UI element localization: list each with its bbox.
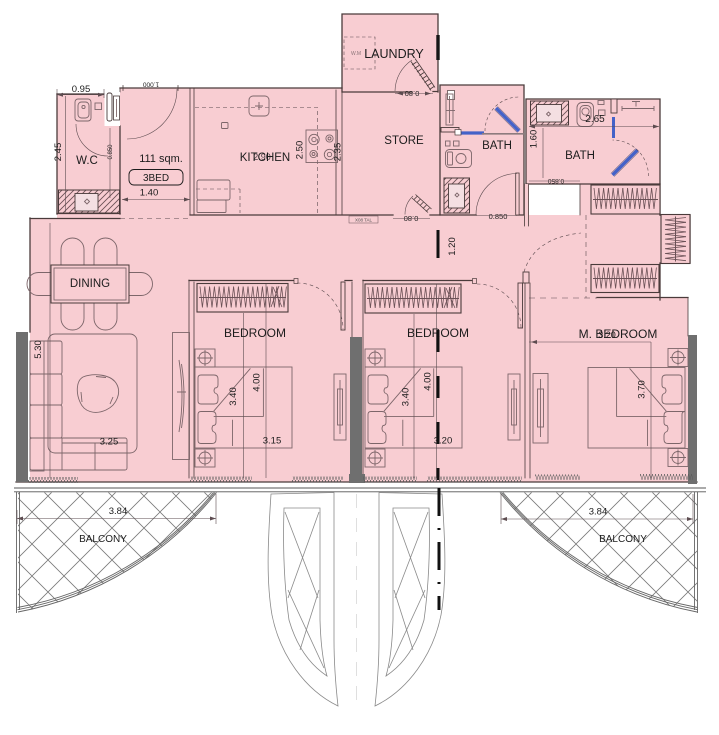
svg-text:BATH: BATH — [482, 140, 512, 152]
svg-text:3.84: 3.84 — [109, 506, 128, 517]
svg-text:3.25: 3.25 — [100, 437, 119, 448]
svg-text:2.50: 2.50 — [295, 141, 306, 160]
svg-text:3.84: 3.84 — [589, 507, 608, 518]
svg-text:4.00: 4.00 — [423, 372, 434, 391]
svg-text:M. BEDROOM: M. BEDROOM — [579, 327, 658, 341]
svg-text:1.000: 1.000 — [142, 81, 159, 88]
svg-text:BALCONY: BALCONY — [599, 534, 647, 545]
svg-text:2.35: 2.35 — [333, 143, 344, 162]
svg-text:3.70: 3.70 — [637, 380, 648, 399]
svg-text:3.40: 3.40 — [401, 388, 412, 407]
svg-text:0.850: 0.850 — [489, 212, 508, 221]
svg-text:BEDROOM: BEDROOM — [224, 326, 286, 340]
svg-text:0.95: 0.95 — [72, 84, 91, 95]
svg-text:3.40: 3.40 — [228, 387, 239, 406]
svg-text:BALCONY: BALCONY — [79, 534, 127, 545]
svg-text:1.60: 1.60 — [529, 130, 540, 149]
svg-text:DINING: DINING — [70, 278, 110, 290]
svg-text:0.850: 0.850 — [547, 177, 564, 184]
svg-text:4.00: 4.00 — [252, 373, 263, 392]
svg-text:111 sqm.: 111 sqm. — [139, 153, 183, 165]
svg-text:2.45: 2.45 — [53, 143, 64, 162]
svg-text:5.30: 5.30 — [33, 340, 44, 359]
svg-text:W.C: W.C — [76, 155, 98, 167]
svg-text:BATH: BATH — [565, 150, 595, 162]
svg-text:STORE: STORE — [384, 135, 424, 147]
svg-text:3.15: 3.15 — [263, 436, 282, 447]
svg-text:0.850: 0.850 — [108, 144, 114, 160]
svg-text:1.40: 1.40 — [140, 188, 159, 199]
svg-text:LAUNDRY: LAUNDRY — [364, 47, 424, 61]
svg-text:1.20: 1.20 — [447, 237, 458, 256]
svg-text:X08 TAL: X08 TAL — [355, 218, 373, 223]
svg-text:W.M: W.M — [351, 51, 361, 57]
svg-text:3BED: 3BED — [143, 173, 169, 184]
svg-text:KITCHEN: KITCHEN — [240, 152, 290, 164]
svg-text:2.65: 2.65 — [585, 114, 605, 125]
